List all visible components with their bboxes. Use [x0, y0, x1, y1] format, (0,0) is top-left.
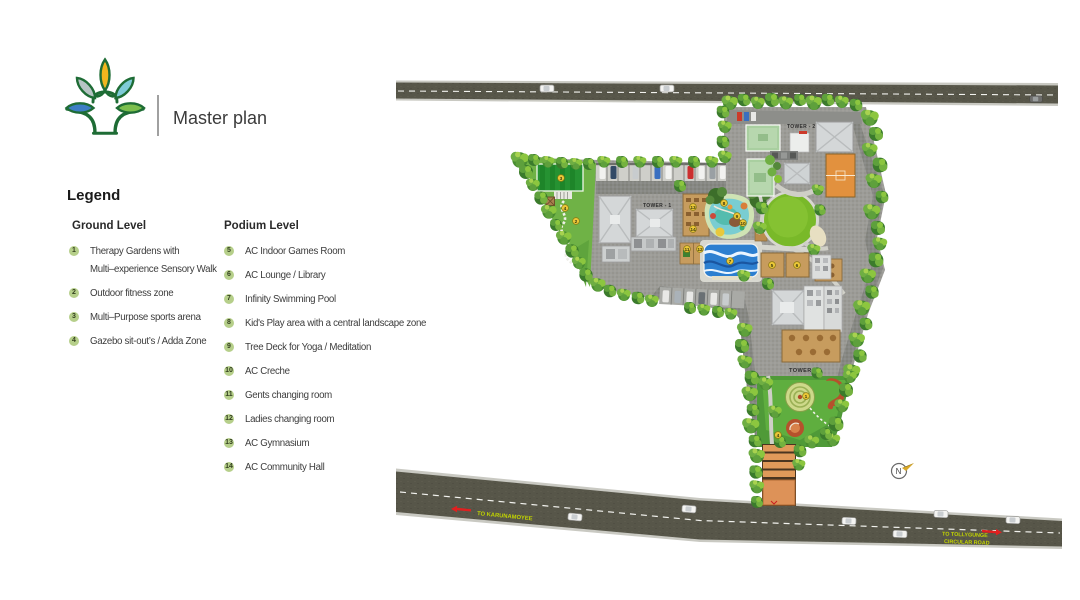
svg-text:8: 8: [723, 201, 726, 207]
svg-text:6: 6: [796, 263, 799, 269]
svg-text:13: 13: [690, 205, 696, 211]
svg-text:4: 4: [777, 433, 780, 439]
svg-text:12: 12: [697, 247, 703, 253]
svg-text:14: 14: [690, 227, 696, 233]
svg-text:3: 3: [560, 176, 563, 182]
svg-text:5: 5: [771, 263, 774, 269]
svg-text:10: 10: [740, 221, 746, 227]
svg-text:7: 7: [729, 259, 732, 265]
svg-text:4: 4: [564, 206, 567, 212]
svg-text:1: 1: [805, 394, 808, 400]
svg-text:TOWER - 2: TOWER - 2: [787, 124, 815, 130]
svg-text:9: 9: [736, 214, 739, 220]
svg-text:TOWER - 1: TOWER - 1: [643, 203, 671, 209]
svg-text:11: 11: [684, 247, 689, 253]
svg-text:2: 2: [575, 219, 578, 225]
